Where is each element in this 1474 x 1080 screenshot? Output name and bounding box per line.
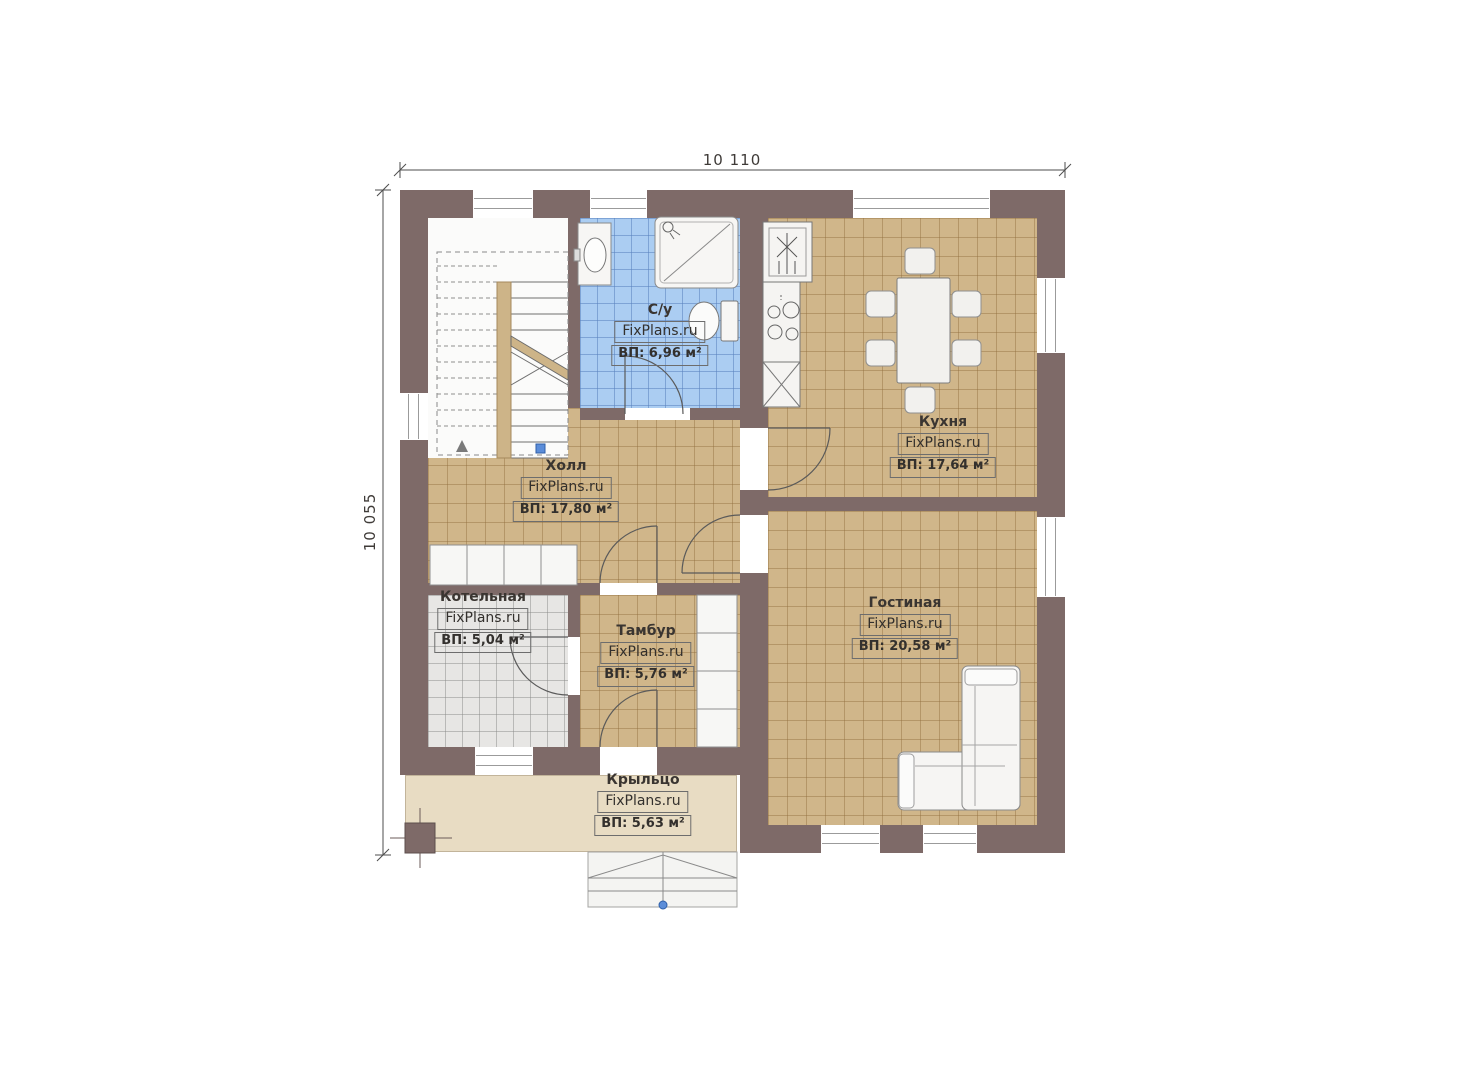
door-opening-kitchen xyxy=(740,428,768,490)
label-boiler: Котельная FixPlans.ru ВП: 5,04 м² xyxy=(434,590,531,653)
room-name-vestibule: Тамбур xyxy=(616,624,675,639)
room-area-vestibule: ВП: 5,76 м² xyxy=(597,666,694,687)
door-opening-bathroom xyxy=(625,408,690,420)
window-bottom-living-1 xyxy=(821,825,880,853)
wall-bottom-left xyxy=(400,747,740,775)
door-opening-boiler xyxy=(568,637,580,695)
window-top-bathroom xyxy=(590,190,647,218)
room-area-boiler: ВП: 5,04 м² xyxy=(434,632,531,653)
window-right-kitchen xyxy=(1037,278,1065,353)
watermark: FixPlans.ru xyxy=(437,608,528,630)
room-area-hall: ВП: 17,80 м² xyxy=(513,501,619,522)
entry-marker xyxy=(659,901,667,909)
watermark: FixPlans.ru xyxy=(600,642,691,664)
window-boiler xyxy=(475,747,533,775)
label-bathroom: С/у FixPlans.ru ВП: 6,96 м² xyxy=(611,303,708,366)
room-name-porch: Крыльцо xyxy=(606,773,679,788)
room-area-bathroom: ВП: 6,96 м² xyxy=(611,345,708,366)
door-opening-living xyxy=(740,515,768,573)
door-opening-entrance xyxy=(600,747,657,775)
watermark: FixPlans.ru xyxy=(597,791,688,813)
floor-living-room xyxy=(768,511,1037,825)
room-area-porch: ВП: 5,63 м² xyxy=(594,815,691,836)
wall-left xyxy=(400,218,428,775)
door-opening-vestibule-hall xyxy=(600,583,657,595)
window-top-stairs xyxy=(473,190,533,218)
label-porch: Крыльцо FixPlans.ru ВП: 5,63 м² xyxy=(594,773,691,836)
dimension-height-label: 10 055 xyxy=(361,493,379,552)
label-living: Гостиная FixPlans.ru ВП: 20,58 м² xyxy=(852,596,958,659)
watermark: FixPlans.ru xyxy=(897,433,988,455)
window-bottom-living-2 xyxy=(923,825,977,853)
label-hall: Холл FixPlans.ru ВП: 17,80 м² xyxy=(513,459,619,522)
room-name-bathroom: С/у xyxy=(648,303,673,318)
room-name-living: Гостиная xyxy=(869,596,942,611)
room-area-kitchen: ВП: 17,64 м² xyxy=(890,457,996,478)
room-name-hall: Холл xyxy=(546,459,587,474)
wall-kitchen-living xyxy=(768,497,1037,511)
wall-bottom-right xyxy=(740,825,1065,853)
watermark: FixPlans.ru xyxy=(614,321,705,343)
room-name-kitchen: Кухня xyxy=(919,415,967,430)
floor-plan-canvas: 10 110 10 055 С/у FixPlans.ru ВП: 6,96 м… xyxy=(0,0,1474,1080)
label-kitchen: Кухня FixPlans.ru ВП: 17,64 м² xyxy=(890,415,996,478)
dimension-width-label: 10 110 xyxy=(703,151,762,169)
watermark: FixPlans.ru xyxy=(520,477,611,499)
window-right-living xyxy=(1037,517,1065,597)
watermark: FixPlans.ru xyxy=(859,614,950,636)
label-vestibule: Тамбур FixPlans.ru ВП: 5,76 м² xyxy=(597,624,694,687)
room-name-boiler: Котельная xyxy=(440,590,526,605)
entrance-steps xyxy=(588,852,737,909)
room-area-living: ВП: 20,58 м² xyxy=(852,638,958,659)
wall-stairs-bathroom xyxy=(568,218,580,408)
floor-stairs-area xyxy=(428,218,568,458)
window-left-stairs xyxy=(400,393,428,440)
window-top-kitchen xyxy=(853,190,990,218)
